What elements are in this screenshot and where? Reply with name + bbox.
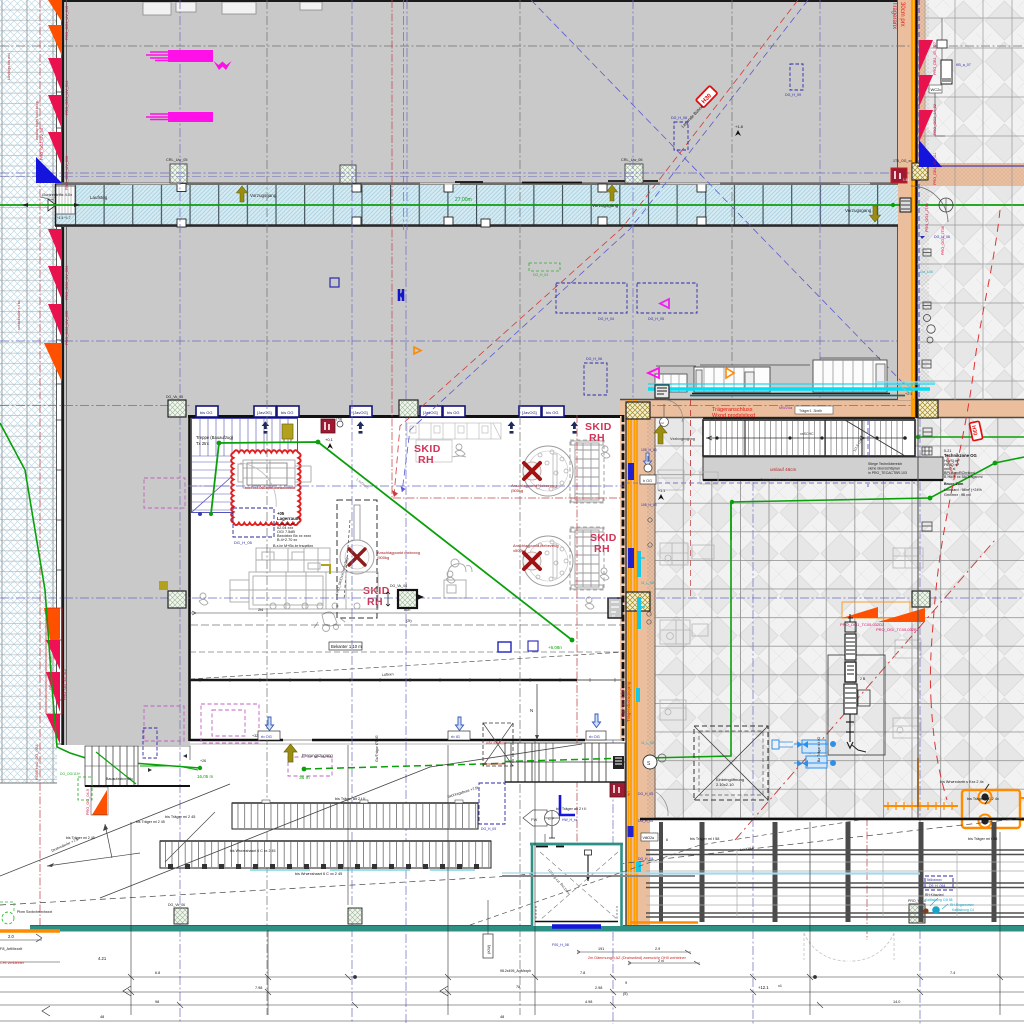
- svg-text:B.x.br M+Bx.br trsqxtlxx: B.x.br M+Bx.br trsqxtlxx: [273, 544, 313, 548]
- svg-text:bis OG: bis OG: [447, 410, 459, 415]
- svg-text:bis Träger mi t 58: bis Träger mi t 58: [968, 837, 997, 841]
- svg-text:4.98: 4.98: [585, 1000, 592, 1004]
- svg-text:DG_H_08: DG_H_08: [671, 116, 687, 120]
- svg-text:+1.1: +1.1: [658, 489, 665, 493]
- svg-text:1.51: 1.51: [903, 178, 909, 182]
- svg-text:DG_Vk_06: DG_Vk_06: [168, 903, 185, 907]
- svg-text:Gebäudelinie x xbx: Gebäudelinie x xbx: [760, 478, 791, 482]
- svg-text:D9_H_064: D9_H_064: [929, 884, 945, 888]
- svg-text:Prerungszugang: Prerungszugang: [302, 753, 333, 758]
- svg-text:36 m: 36 m: [299, 775, 310, 781]
- svg-text:x500kg: x500kg: [513, 548, 526, 553]
- svg-text:2 B: 2 B: [860, 677, 866, 681]
- svg-text:DG_Vk_04: DG_Vk_04: [390, 584, 407, 588]
- svg-text:PRO_OG2_UV_098: PRO_OG2_UV_098: [65, 156, 69, 190]
- svg-text:+0,1: +0,1: [325, 437, 334, 442]
- svg-text:Bauaufzubxr 46x: Bauaufzubxr 46x: [106, 777, 133, 781]
- svg-text:(KW): (KW): [486, 944, 491, 954]
- svg-text:rb OG: rb OG: [589, 734, 600, 739]
- svg-text:in PRO_TECACTBR.103: in PRO_TECACTBR.103: [868, 471, 907, 475]
- svg-text:6.8: 6.8: [155, 971, 160, 975]
- svg-text:Trägeranschluß: Trägeranschluß: [620, 688, 625, 720]
- svg-text:5x5xxxxxx: 5x5xxxxxx: [927, 878, 942, 882]
- svg-text:RH: RH: [418, 454, 434, 466]
- svg-text:6: 6: [666, 838, 668, 842]
- svg-text:bis Wrwrxshasrt 6 C xx 2 45: bis Wrwrxshasrt 6 C xx 2 45: [295, 872, 342, 876]
- svg-text:bis OG: bis OG: [546, 410, 558, 415]
- svg-text:(500kg: (500kg: [377, 555, 389, 560]
- svg-text:DG_OG/119+: DG_OG/119+: [60, 772, 81, 776]
- svg-text:4.21: 4.21: [98, 956, 107, 961]
- svg-text:b OG: b OG: [643, 479, 652, 483]
- svg-text:16,05 m: 16,05 m: [197, 774, 214, 779]
- svg-text:CRL_Uw_05: CRL_Uw_05: [166, 158, 188, 162]
- svg-text:PRO_OG2_UV_06: PRO_OG2_UV_06: [40, 128, 44, 160]
- svg-text:11_L_05: 11_L_05: [641, 741, 654, 745]
- svg-text:PRO_OG4_JT88: PRO_OG4_JT88: [925, 203, 929, 232]
- svg-text:[JavOG]: [JavOG]: [257, 410, 272, 415]
- svg-text:wAx dxblxxxx: wAx dxblxxxx: [486, 741, 507, 745]
- svg-text:Vorzugsgang: Vorzugsgang: [250, 193, 277, 198]
- svg-text:48: 48: [100, 1015, 104, 1019]
- svg-text:DG_Vk_05: DG_Vk_05: [166, 395, 183, 399]
- svg-text:14.0: 14.0: [893, 1000, 900, 1004]
- svg-text:Gx/Trägxr t75 IG: Gx/Trägxr t75 IG: [375, 735, 379, 762]
- svg-text:Laufsteg: Laufsteg: [90, 195, 108, 200]
- svg-text:bis Träger mi 2 45: bis Träger mi 2 45: [66, 836, 95, 840]
- svg-text:C P: C P: [548, 817, 555, 821]
- svg-text:105_H_06: 105_H_06: [641, 448, 657, 452]
- svg-text:9: 9: [625, 981, 627, 985]
- svg-text:DG_H_04: DG_H_04: [533, 273, 548, 277]
- svg-text:bis Träger mi 2 45: bis Träger mi 2 45: [165, 815, 195, 819]
- svg-text:DG_H_05: DG_H_05: [648, 317, 664, 321]
- svg-text:WC2c: WC2c: [931, 87, 942, 92]
- svg-text:VtilO2a: VtilO2a: [643, 836, 655, 840]
- svg-text:2m Dämmungin AZ (Drainwänd) zw: 2m Dämmungin AZ (Drainwänd) zwescichr OH…: [588, 956, 687, 960]
- svg-text:[JavOG]: [JavOG]: [353, 410, 368, 415]
- svg-text:2t4: 2t4: [258, 608, 263, 612]
- svg-text:Bekanter 1.10 m: Bekanter 1.10 m: [331, 644, 362, 649]
- svg-text:Lüsftxgs bis wxl: Lüsftxgs bis wxl: [7, 53, 11, 80]
- svg-text:DG_H_09: DG_H_09: [785, 93, 801, 97]
- svg-text:PRO_OG2_14_92: PRO_OG2_14_92: [933, 104, 937, 135]
- svg-text:PRO_OG_45_312: PRO_OG_45_312: [63, 669, 67, 700]
- svg-text:Bxxdxbfölgxxx: Bxxdxbfölgxxx: [484, 762, 506, 766]
- svg-text:B Hö/R xx 5A/Trägxr.ml: B Hö/R xx 5A/Trägxr.ml: [944, 475, 983, 479]
- svg-text:30cm prx: 30cm prx: [899, 2, 905, 27]
- svg-text:Lombard : 98m² (+24%: Lombard : 98m² (+24%: [944, 488, 983, 492]
- svg-text:1T5_OG_xx: 1T5_OG_xx: [893, 159, 912, 163]
- svg-text:bis OG: bis OG: [281, 410, 293, 415]
- svg-text:DG_H_05: DG_H_05: [481, 827, 496, 831]
- svg-text:Lüftxxn: Lüftxxn: [382, 672, 394, 677]
- svg-text:DG_H_06: DG_H_06: [586, 357, 602, 361]
- svg-text:Gmxmxr : 96 xxl: Gmxmxr : 96 xxl: [944, 493, 971, 497]
- svg-text:Vxxlxxgxxgxxg: Vxxlxxgxxgxxg: [670, 437, 695, 441]
- svg-text:+1.5 +1.7: +1.5 +1.7: [57, 216, 71, 220]
- svg-text:(2t): (2t): [406, 619, 412, 623]
- svg-text:11_L_06: 11_L_06: [641, 581, 654, 585]
- svg-text:rb OG: rb OG: [261, 734, 272, 739]
- svg-text:[JavOG]: [JavOG]: [423, 410, 438, 415]
- svg-text:+26: +26: [200, 759, 206, 763]
- svg-text:Tx 2trx: Tx 2trx: [196, 441, 210, 446]
- svg-text:bis Wrwrxshasnt 6 C xx 2 45: bis Wrwrxshasnt 6 C xx 2 45: [230, 849, 275, 853]
- svg-text:Trägerxbxzugsgang: Trägerxbxzugsgang: [626, 681, 631, 722]
- svg-text:RH-Rxgxrxxmxx: RH-Rxgxrxxmxx: [950, 903, 974, 907]
- svg-text:48: 48: [500, 1015, 504, 1019]
- svg-text:PRO_DB1_4S_311: PRO_DB1_4S_311: [933, 152, 937, 185]
- svg-text:78: 78: [516, 985, 520, 989]
- svg-text:Vorzugsgang: Vorzugsgang: [592, 203, 619, 208]
- svg-text:+1.8: +1.8: [735, 124, 744, 129]
- svg-text:Trägeranx: Trägeranx: [891, 2, 897, 29]
- svg-text:(500kg: (500kg: [511, 488, 523, 493]
- svg-text:PRO_OG_04-9: PRO_OG_04-9: [86, 789, 90, 815]
- svg-text:PRO_OG2_UV_095: PRO_OG2_UV_095: [65, 311, 69, 345]
- svg-text:RH Köwzizxi: RH Köwzizxi: [925, 893, 944, 897]
- svg-text:2.98: 2.98: [595, 986, 602, 990]
- svg-text:+2.1: +2.1: [905, 392, 913, 396]
- svg-text:7.8: 7.8: [580, 971, 585, 975]
- svg-text:sxsbxkxxlbr s t bx: sxsbxkxxlbr s t bx: [17, 300, 21, 330]
- svg-text:PRO_DB1_4S_327: PRO_DB1_4S_327: [933, 42, 937, 75]
- svg-text:B.4+2.70 xx: B.4+2.70 xx: [277, 538, 297, 542]
- svg-text:PRO_OG4_UV_014: PRO_OG4_UV_014: [65, 81, 69, 115]
- svg-text:bis OG: bis OG: [200, 410, 212, 415]
- svg-text:rb IG: rb IG: [451, 734, 460, 739]
- svg-text:bxxTxx4.06Explei wxhsxlxxfelib: bxxTxx4.06Explei wxhsxlxxfelib: [245, 486, 295, 490]
- svg-text:DG_H_05: DG_H_05: [234, 540, 253, 545]
- svg-text:(5): (5): [623, 992, 628, 996]
- svg-text:[JavOG]: [JavOG]: [522, 410, 537, 415]
- svg-text:HW_H_xx: HW_H_xx: [562, 818, 578, 822]
- svg-text:DG_H_04: DG_H_04: [598, 317, 614, 321]
- svg-text:7.4: 7.4: [950, 971, 955, 975]
- svg-text:191: 191: [598, 947, 604, 951]
- svg-text:2.9: 2.9: [655, 947, 660, 951]
- svg-text:wxxbxr rxpty fxxxl bxxp: wxxbxr rxpty fxxxl bxxp: [35, 101, 39, 140]
- svg-text:Stiege Technikbereich: Stiege Technikbereich: [868, 462, 902, 466]
- svg-text:F8_ArtMxxxIt: F8_ArtMxxxIt: [0, 947, 23, 951]
- svg-text:PRO_OG4_JT08: PRO_OG4_JT08: [941, 226, 945, 255]
- svg-text:CRL_Uw_06: CRL_Uw_06: [621, 158, 643, 162]
- svg-text:PRO_OG2_UV_094: PRO_OG2_UV_094: [65, 266, 69, 300]
- svg-text:Technikzone OG: Technikzone OG: [944, 453, 977, 458]
- svg-text:N: N: [530, 708, 533, 713]
- svg-text:CHt verkleiner: CHt verkleiner: [0, 961, 25, 965]
- svg-text:ef: ef: [612, 614, 615, 618]
- svg-text:105_H_05: 105_H_05: [641, 503, 657, 507]
- svg-text:98.2x495_ArtMxxph: 98.2x495_ArtMxxph: [500, 969, 531, 973]
- svg-text:MW24a: MW24a: [779, 406, 793, 410]
- svg-text:RH: RH: [589, 432, 605, 444]
- svg-text:1xx_L06: 1xx_L06: [920, 270, 933, 274]
- svg-text:+12.1: +12.1: [758, 985, 769, 990]
- svg-text:bis Träger mi 2 45: bis Träger mi 2 45: [136, 820, 165, 824]
- svg-text:Bx Trägxr b t IG: Bx Trägxr b t IG: [817, 737, 821, 762]
- svg-text:Kaltfadrung C4t 58: Kaltfadrung C4t 58: [925, 898, 953, 902]
- svg-text:+6,08n: +6,08n: [548, 645, 562, 650]
- svg-text:bis Wrwrxdxrm s Kxx 2 4x: bis Wrwrxdxrm s Kxx 2 4x: [940, 780, 984, 784]
- svg-text:W7: W7: [627, 791, 631, 796]
- svg-text:FW: FW: [531, 817, 537, 822]
- svg-text:xxSCHC: xxSCHC: [800, 432, 814, 436]
- svg-text:RO95 HxU_OG_0G4: RO95 HxU_OG_0G4: [35, 744, 39, 780]
- svg-text:KB_a_07: KB_a_07: [956, 63, 971, 67]
- svg-text:PRO_OG4_UV_015: PRO_OG4_UV_015: [65, 6, 69, 40]
- svg-text:PRO_OG/_TC05.032B2: PRO_OG/_TC05.032B2: [876, 627, 920, 632]
- svg-text:Kaltfadrung C4: Kaltfadrung C4: [952, 908, 974, 912]
- svg-text:Lagerraum: Lagerraum: [277, 516, 300, 521]
- svg-text:DG_H_05: DG_H_05: [638, 792, 653, 796]
- svg-text:bis Träger x C 2 4x: bis Träger x C 2 4x: [967, 797, 999, 801]
- svg-text:2.10x2.10: 2.10x2.10: [716, 782, 734, 787]
- svg-text:(+5): (+5): [336, 417, 342, 421]
- svg-text:7.98: 7.98: [255, 986, 262, 990]
- svg-text:Vorzugsgang: Vorzugsgang: [845, 208, 872, 213]
- svg-text:xxl: xxl: [660, 421, 664, 425]
- svg-text:Gurtzentrifix 4.0x: Gurtzentrifix 4.0x: [42, 192, 72, 197]
- svg-text:2.0: 2.0: [8, 934, 14, 939]
- svg-text:Treppe (Bauaufzug): Treppe (Bauaufzug): [196, 435, 234, 440]
- svg-text:27,00m: 27,00m: [455, 197, 472, 203]
- svg-text:2 xl: 2 xl: [658, 959, 664, 963]
- svg-text:bis Träger mi t 58: bis Träger mi t 58: [690, 837, 719, 841]
- svg-text:umlauf 46cm: umlauf 46cm: [770, 467, 796, 472]
- svg-text:Träger1 .3bxth: Träger1 .3bxth: [799, 409, 822, 413]
- svg-text:98: 98: [155, 1000, 159, 1004]
- svg-text:siehe übersichtsplan: siehe übersichtsplan: [868, 467, 900, 471]
- svg-text:x1: x1: [778, 984, 782, 988]
- svg-text:Plxm Sxxbxhmrxhxxxt: Plxm Sxxbxhmrxhxxxt: [17, 910, 52, 914]
- svg-text:F00_H_08: F00_H_08: [552, 943, 569, 947]
- svg-text:RH: RH: [594, 543, 610, 555]
- svg-text:Bruce Zum: Bruce Zum: [944, 482, 964, 486]
- svg-text:+32: +32: [252, 734, 258, 738]
